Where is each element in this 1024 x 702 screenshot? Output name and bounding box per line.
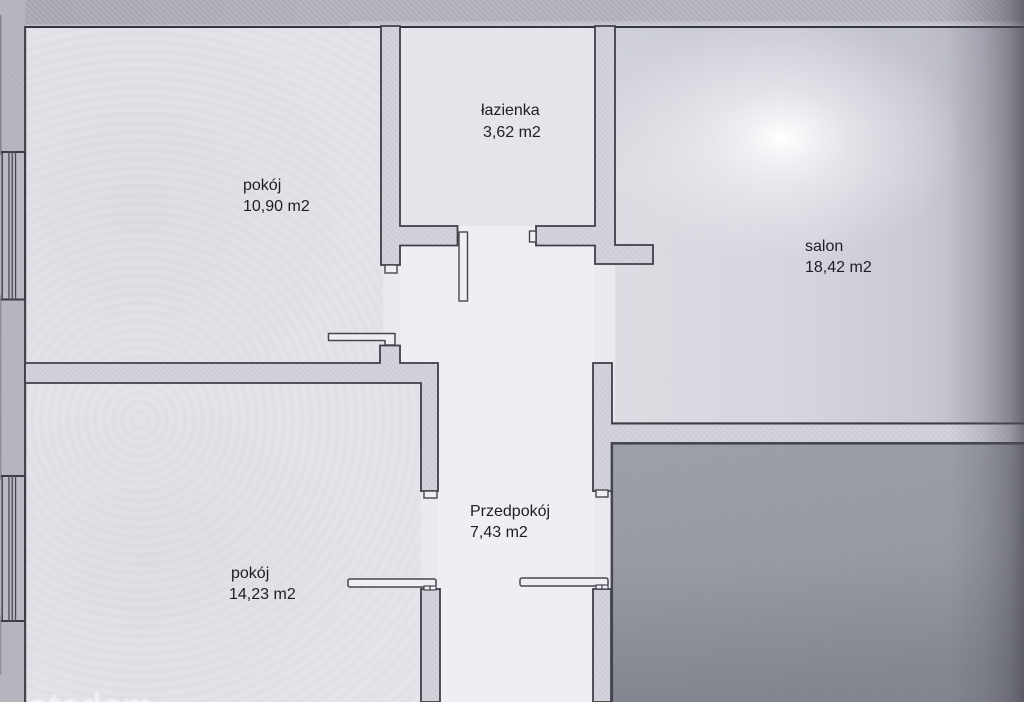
- svg-text:7,43 m2: 7,43 m2: [470, 524, 528, 541]
- svg-text:łazienka: łazienka: [481, 102, 540, 119]
- svg-text:salon: salon: [805, 238, 843, 255]
- svg-text:3,62 m2: 3,62 m2: [483, 124, 541, 141]
- svg-text:pokój: pokój: [243, 177, 281, 194]
- svg-text:18,42 m2: 18,42 m2: [805, 259, 872, 276]
- svg-text:14,23 m2: 14,23 m2: [229, 586, 296, 603]
- svg-text:otodom: otodom: [28, 687, 153, 702]
- svg-text:10,90 m2: 10,90 m2: [243, 198, 310, 215]
- svg-text:pokój: pokój: [231, 565, 269, 582]
- svg-text:Przedpokój: Przedpokój: [470, 503, 550, 520]
